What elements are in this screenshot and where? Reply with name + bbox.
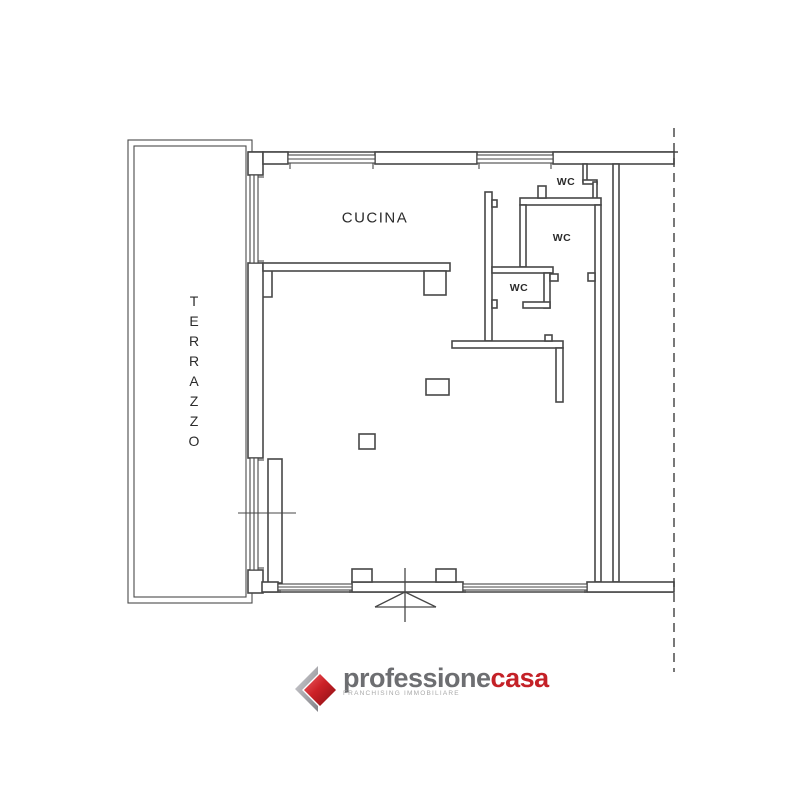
logo-wordmark: professionecasa (343, 663, 549, 693)
logo-wordmark-red: casa (491, 663, 549, 693)
professionecasa-logo: professionecasa FRANCHISING IMMOBILIARE (293, 663, 549, 715)
logo-spacer (293, 663, 347, 715)
mid-wall (452, 335, 563, 402)
floor-plan-page: TERRAZZO CUCINA WC WC WC professionecasa… (0, 0, 800, 792)
entrance-door-swing-icon (375, 568, 436, 622)
room-label-cucina: CUCINA (342, 210, 409, 227)
room-label-wc-middle: WC (553, 232, 572, 244)
cucina-wall (263, 263, 450, 297)
window-symbol (250, 458, 264, 570)
column-marker (359, 379, 449, 449)
wc-walls (485, 164, 601, 582)
right-wall (613, 164, 619, 582)
window-symbol (288, 155, 375, 169)
logo-text-column: professionecasa FRANCHISING IMMOBILIARE (343, 663, 549, 697)
room-label-wc-bottom: WC (510, 282, 529, 294)
room-label-wc-top: WC (557, 176, 576, 188)
window-symbol (250, 175, 264, 263)
logo-wordmark-gray: professione (343, 663, 491, 693)
window-symbol (477, 155, 553, 169)
room-label-terrazzo: TERRAZZO (186, 293, 202, 453)
partition-wall (238, 459, 296, 583)
